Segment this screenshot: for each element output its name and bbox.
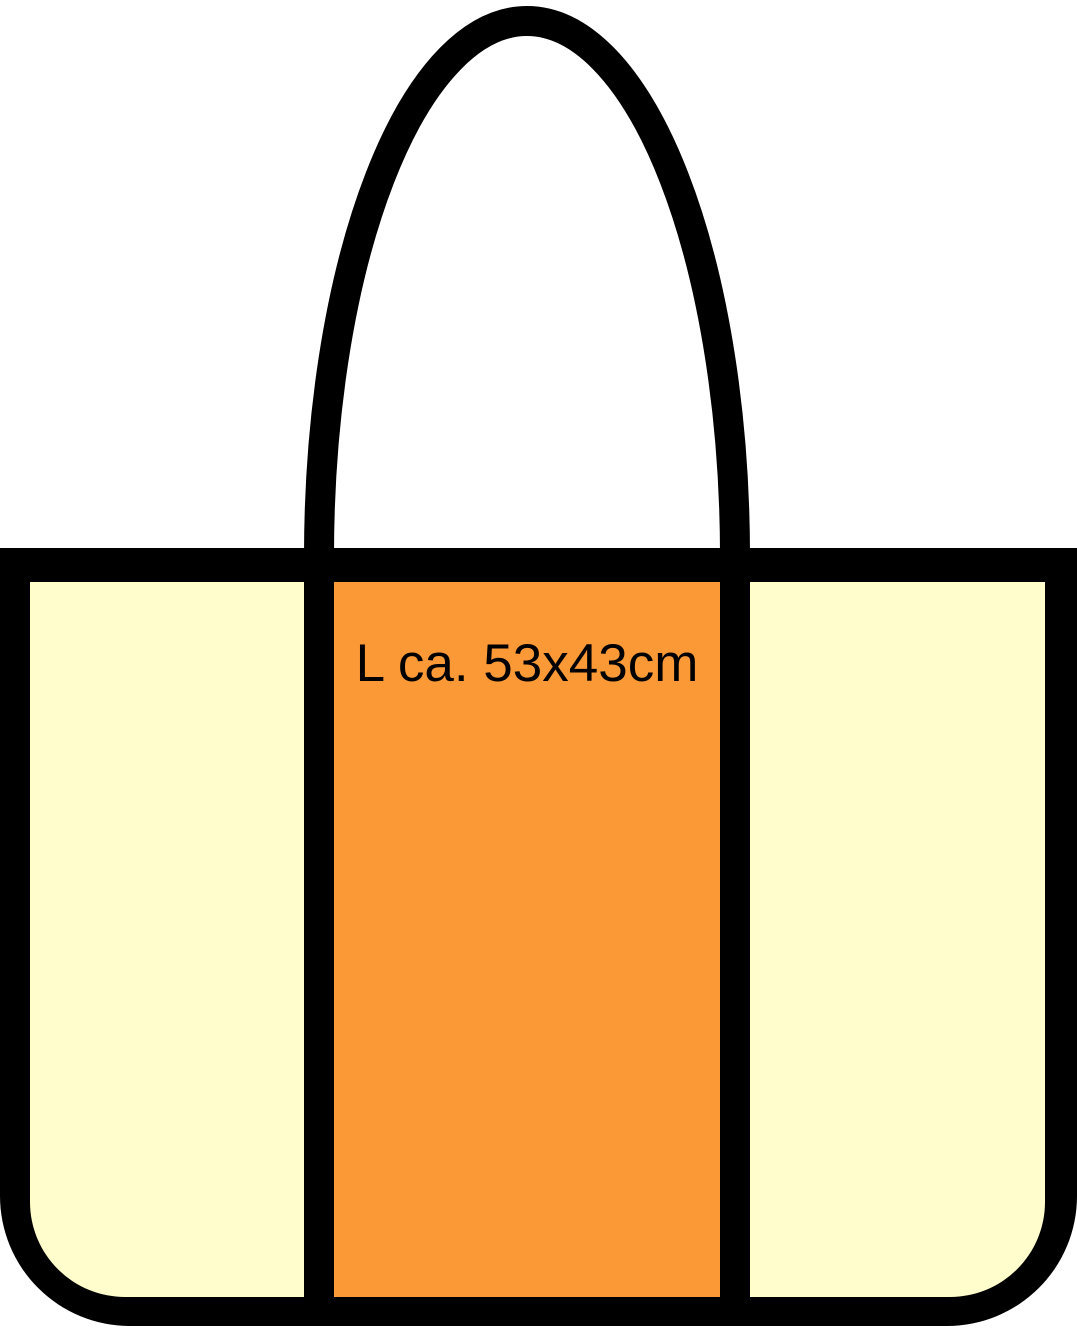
bag-panel-left — [30, 582, 304, 1297]
size-label: L ca. 53x43cm — [356, 634, 699, 693]
tote-bag-drawing: L ca. 53x43cm — [0, 0, 1077, 1328]
bag-panel-right — [750, 582, 1045, 1297]
tote-bag-illustration: L ca. 53x43cm — [0, 0, 1077, 1328]
